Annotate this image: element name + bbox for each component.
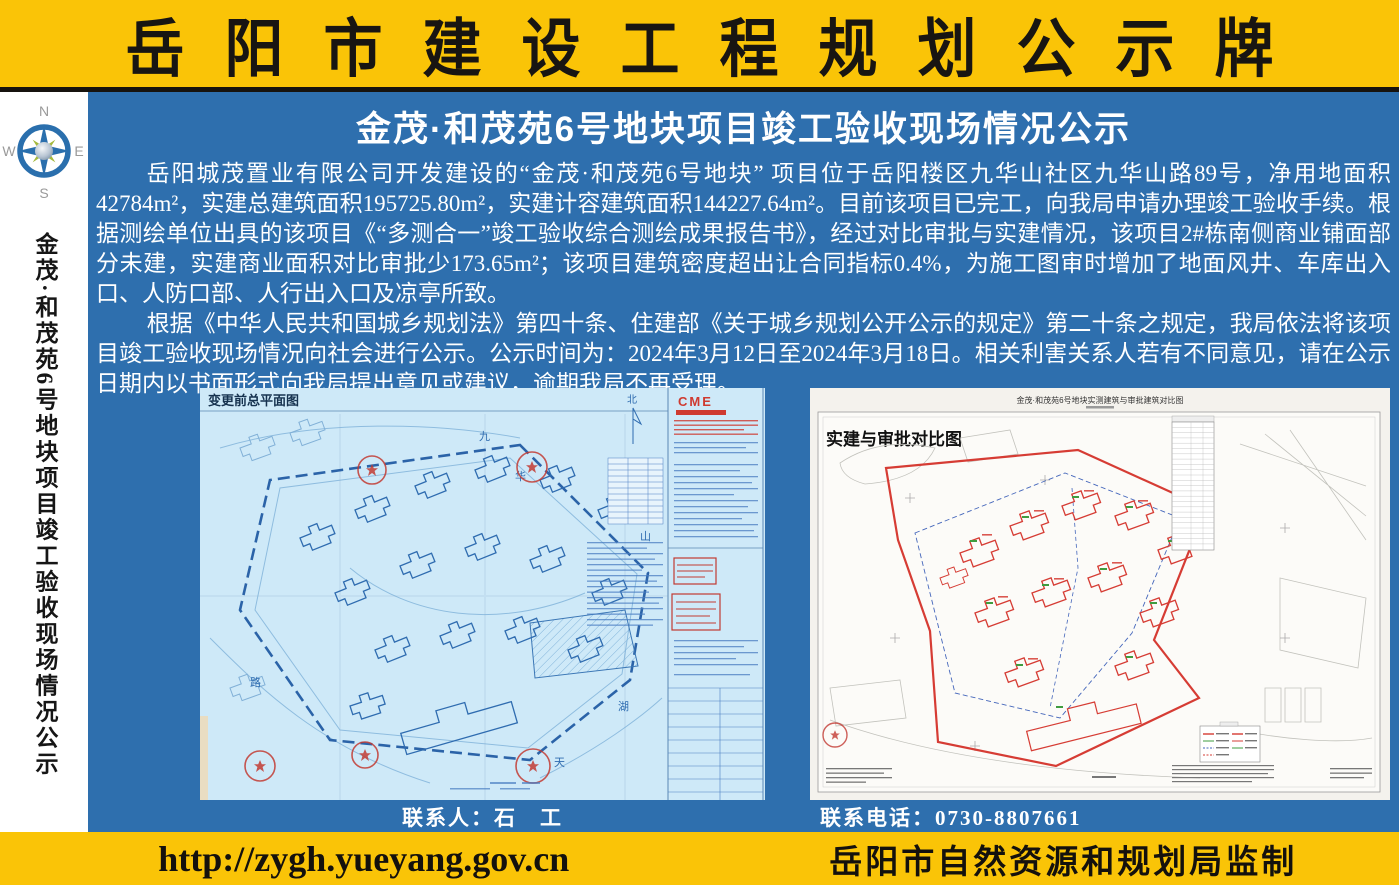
compass-north-label: N [39,103,49,119]
notice-paragraph-1: 岳阳城茂置业有限公司开发建设的“金茂·和茂苑6号地块” 项目位于岳阳楼区九华山社… [88,159,1399,309]
left-site-plan-image: 变更前总平面图 [200,388,765,800]
notice-title: 金茂·和茂苑6号地块项目竣工验收现场情况公示 [88,92,1399,152]
footer: http://zygh.yueyang.gov.cn 岳阳市自然资源和规划局监制 [0,832,1399,885]
banner-title: 岳阳市建设工程规划公示牌 [125,0,1313,89]
left-site-plan-figure: 变更前总平面图 [200,388,765,800]
compass-west-label: W [2,143,16,159]
svg-text:山: 山 [640,530,651,543]
right-site-plan-image: 金茂·和茂苑6号地块实测建筑与审批建筑对比图 实建与审批对比图 [810,388,1390,800]
legend-box [1200,722,1260,762]
banner: 岳阳市建设工程规划公示牌 [0,0,1399,92]
footer-issuer: 岳阳市自然资源和规划局监制 [727,835,1399,883]
right-plan-caption: 联系电话：0730-8807661 [810,802,1399,832]
comparison-table [1172,416,1214,550]
left-plan-label: 变更前总平面图 [208,393,299,408]
compass-icon: N W E S [2,102,86,200]
compass-east-label: E [74,143,83,159]
footer-url: http://zygh.yueyang.gov.cn [0,838,727,880]
right-plan-title: 金茂·和茂苑6号地块实测建筑与审批建筑对比图 [1016,395,1183,405]
svg-text:九: 九 [479,430,490,443]
left-plan-caption: 联系人：石 工 [200,802,765,832]
cme-logo: CME [678,394,713,409]
svg-text:天: 天 [554,757,565,769]
compass-south-label: S [39,185,48,200]
figures-row: 变更前总平面图 [88,388,1399,800]
main-content: 金茂·和茂苑6号地块项目竣工验收现场情况公示 岳阳城茂置业有限公司开发建设的“金… [88,92,1399,832]
right-site-plan-figure: 金茂·和茂苑6号地块实测建筑与审批建筑对比图 实建与审批对比图 [810,388,1390,800]
captions-row: 联系人：石 工 联系电话：0730-8807661 [88,802,1399,832]
area-table [608,458,663,524]
notice-paragraph-2: 根据《中华人民共和国城乡规划法》第四十条、住建部《关于城乡规划公开公示的规定》第… [88,309,1399,399]
svg-text:路: 路 [250,676,261,689]
sidebar: N W E S 金茂·和茂苑6号地块项目竣工验收现场情况公示 [0,92,88,832]
sidebar-vertical-title: 金茂·和茂苑6号地块项目竣工验收现场情况公示 [27,232,61,777]
svg-text:湖: 湖 [618,700,629,713]
svg-text:北: 北 [627,394,637,406]
right-plan-label: 实建与审批对比图 [826,429,962,449]
notice-board: 岳阳市建设工程规划公示牌 N W E S 金茂·和茂苑6号地块项目竣工验收现场情… [0,0,1399,885]
